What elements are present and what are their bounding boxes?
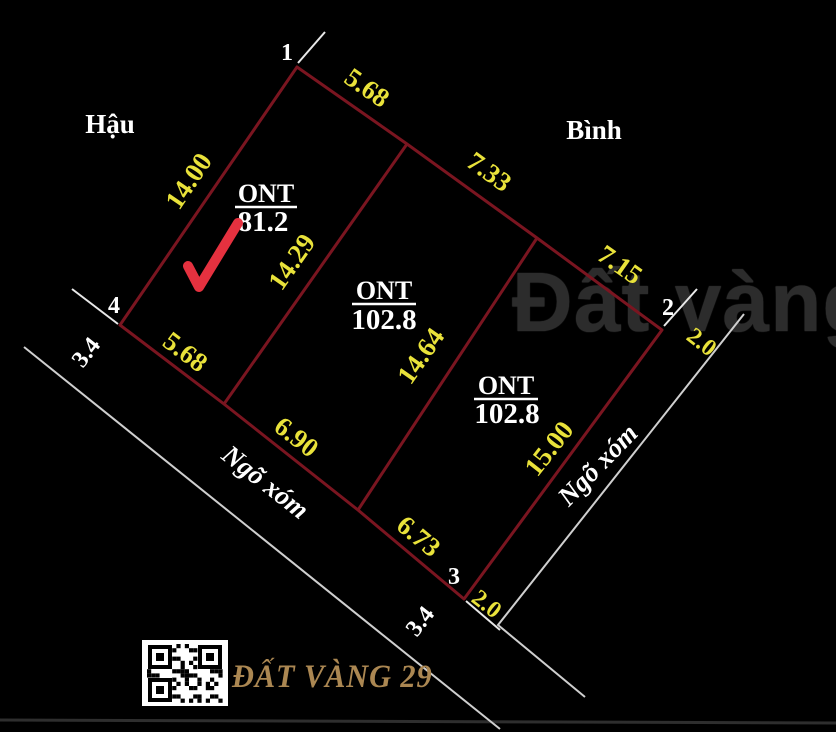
dim-left-edge: 14.00 xyxy=(159,147,218,214)
dim-bottom-c: 6.73 xyxy=(391,509,446,562)
dim-offset-v2: 2.0 xyxy=(681,323,721,362)
bottom-divider-line xyxy=(0,720,836,723)
plot-diagram: 5.68 7.33 7.15 14.00 14.29 14.64 15.00 5… xyxy=(0,0,836,732)
vertex-1-label: 1 xyxy=(281,40,293,66)
qr-finder-bottom-left xyxy=(148,678,172,702)
road-width-left: 3.4 xyxy=(67,333,106,373)
parcel-2-area: 102.8 xyxy=(351,304,416,336)
dim-bottom-b: 6.90 xyxy=(269,411,325,464)
parcel-1-area: 81.2 xyxy=(238,206,289,238)
dim-top-c: 7.15 xyxy=(592,239,648,291)
parcel-1-land-use: ONT xyxy=(238,179,294,208)
parcel-2-label: ONT 102.8 xyxy=(351,276,416,336)
qr-code xyxy=(142,640,228,706)
dim-top-a: 5.68 xyxy=(339,62,395,114)
tick-vertex-1 xyxy=(298,32,325,63)
vertex-3-label: 3 xyxy=(448,564,460,590)
neighbor-left-label: Hậu xyxy=(85,109,135,139)
neighbor-right-label: Bình xyxy=(566,115,622,145)
road-width-bottom: 3.4 xyxy=(401,602,440,642)
vertex-4-label: 4 xyxy=(108,293,120,319)
parcel-3-label: ONT 102.8 xyxy=(474,371,540,430)
road-edge-right xyxy=(498,314,744,697)
parcel-1-label: ONT 81.2 xyxy=(235,179,297,238)
dim-bottom-a: 5.68 xyxy=(158,326,214,378)
checkmark-icon xyxy=(188,223,238,287)
parcel-3-land-use: ONT xyxy=(478,371,534,400)
qr-finder-top-left xyxy=(148,645,172,669)
parcel-2-land-use: ONT xyxy=(356,276,412,305)
dim-offset-v3: 2.0 xyxy=(466,585,506,624)
brand-name: ĐẤT VÀNG 29 xyxy=(231,658,433,694)
qr-finder-top-right xyxy=(198,645,222,669)
parcel-3-area: 102.8 xyxy=(474,398,539,430)
vertex-2-label: 2 xyxy=(662,295,674,321)
dim-divider-1: 14.29 xyxy=(262,228,321,295)
cadastral-sketch: Đất vàng 29 5.68 7.33 7.15 14.00 14.29 1… xyxy=(0,0,836,732)
